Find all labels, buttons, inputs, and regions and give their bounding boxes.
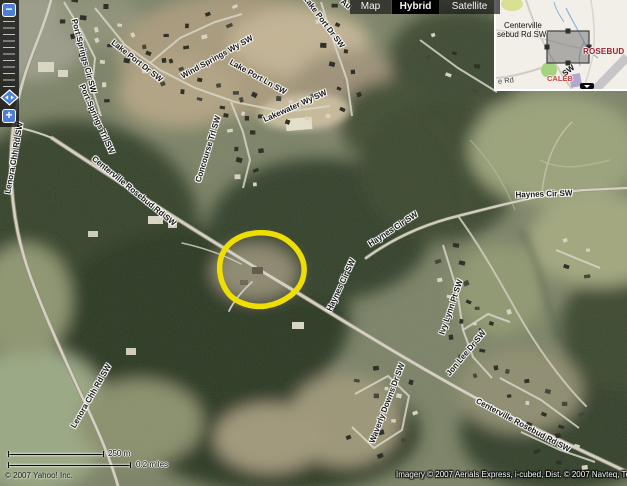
- scale-tick: [130, 462, 131, 468]
- satellite-button[interactable]: Satellite: [440, 0, 500, 14]
- scale-tick: [103, 451, 104, 457]
- viewport-handle-top[interactable]: [566, 29, 571, 34]
- overview-label-rosebud: ROSEBUD: [583, 47, 624, 56]
- map-application-window: Port Springs Cir SWLake Port Dr SWWind S…: [0, 0, 627, 486]
- zoom-slider[interactable]: [3, 21, 15, 87]
- scale-label-imperial: 0.2 miles: [136, 460, 168, 469]
- scale-tick: [8, 462, 9, 468]
- overview-label-centerville-2: sebud Rd SW: [497, 30, 546, 39]
- pan-diamond-icon: [0, 89, 19, 106]
- scale-label-metric: 250 m: [108, 449, 130, 458]
- map-type-switcher: Map Hybrid Satellite: [350, 0, 500, 14]
- pan-control[interactable]: [0, 89, 19, 106]
- scale-bar-imperial: [8, 465, 131, 466]
- hybrid-button[interactable]: Hybrid: [392, 0, 440, 14]
- overview-map[interactable]: Centerville sebud Rd SW ROSEBUD CALEB SW…: [494, 0, 627, 91]
- imagery-attribution: Imagery © 2007 Aerials Express, i-cubed,…: [396, 470, 627, 479]
- overview-label-centerville-1: Centerville: [504, 21, 542, 30]
- map-navigation-controls: − +: [0, 0, 19, 127]
- overview-collapse-tab[interactable]: [580, 83, 594, 89]
- zoom-in-button[interactable]: +: [2, 109, 16, 123]
- viewport-handle-left[interactable]: [545, 45, 550, 50]
- overview-label-e-rd: e Rd: [498, 75, 515, 86]
- scale-bar-metric: [8, 454, 104, 455]
- zoom-out-button[interactable]: −: [2, 3, 16, 17]
- yahoo-copyright: © 2007 Yahoo! Inc.: [5, 471, 73, 480]
- map-button[interactable]: Map: [350, 0, 392, 14]
- scale-tick: [8, 451, 9, 457]
